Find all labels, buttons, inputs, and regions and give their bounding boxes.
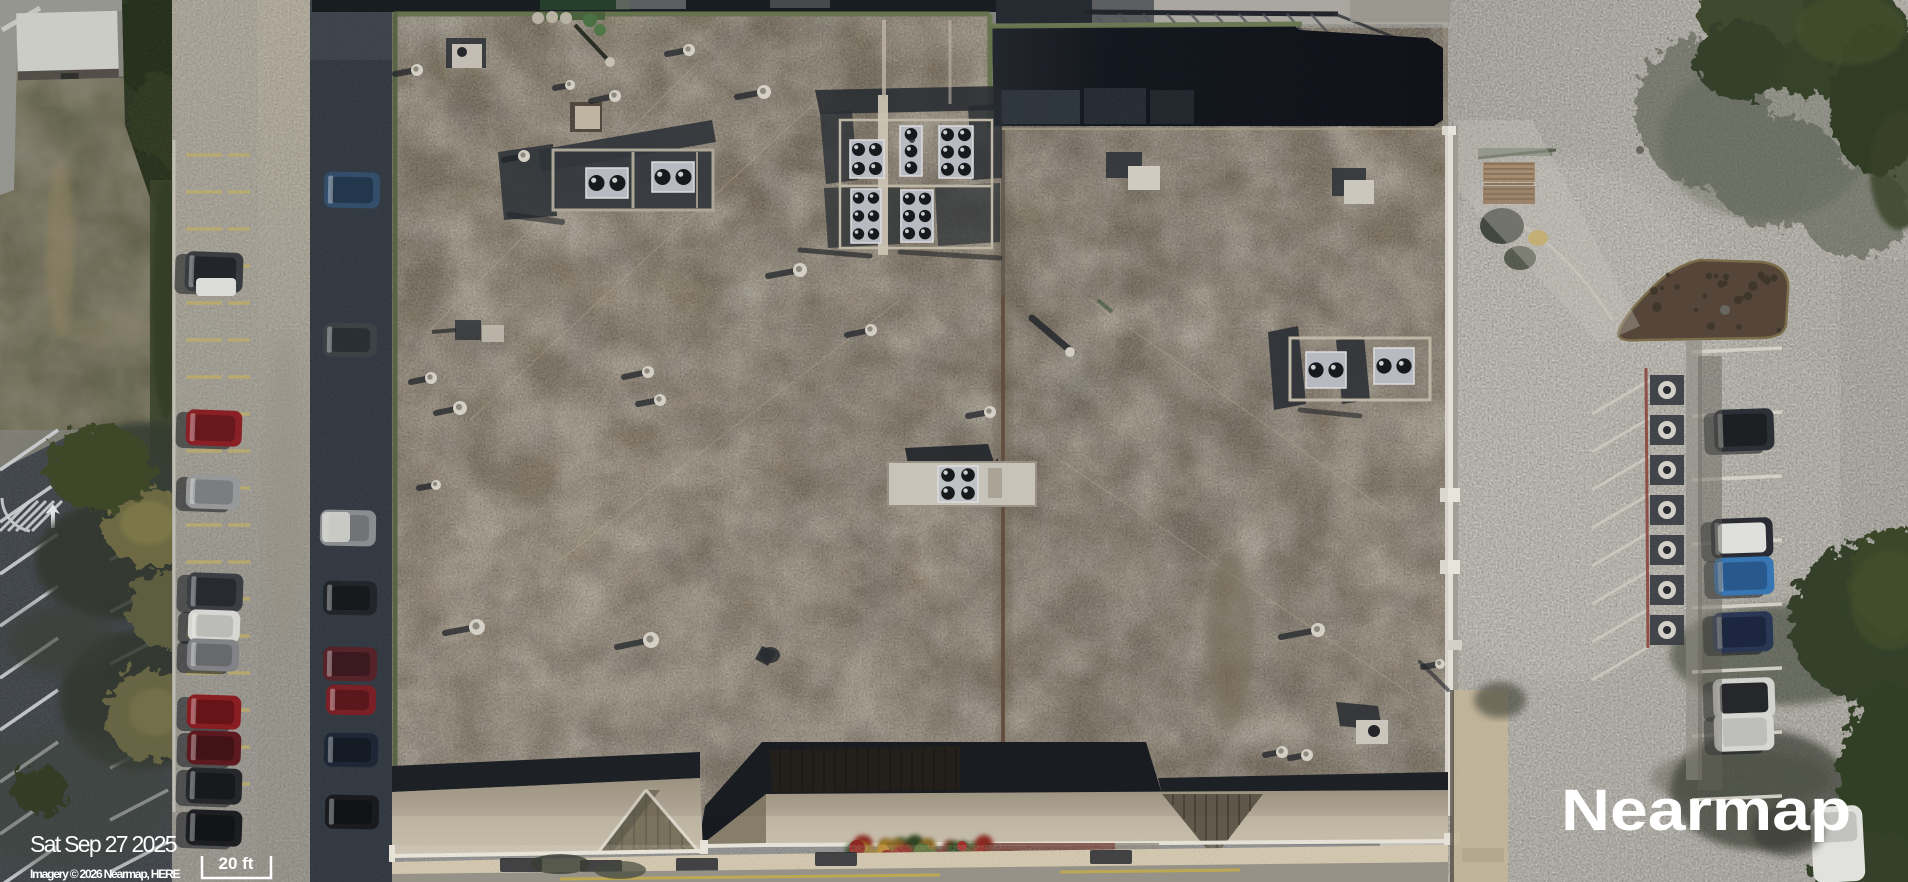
svg-text:20 ft: 20 ft <box>219 854 254 873</box>
svg-text:Nearmap: Nearmap <box>1561 779 1851 843</box>
svg-text:Sat Sep 27 2025: Sat Sep 27 2025 <box>30 831 177 857</box>
svg-text:Imagery © 2026 Nearmap, HERE: Imagery © 2026 Nearmap, HERE <box>30 867 181 881</box>
